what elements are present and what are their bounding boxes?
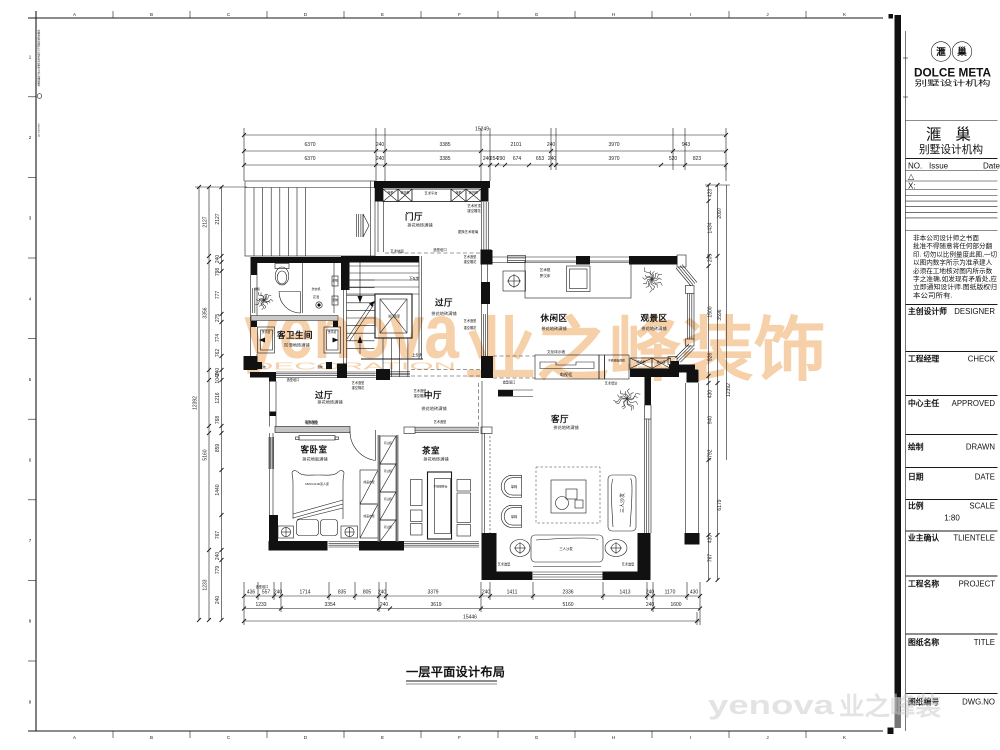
svg-text:镂空雕花: 镂空雕花 (467, 208, 481, 213)
svg-text:洗手盆: 洗手盆 (328, 330, 337, 334)
svg-text:滙 巢: 滙 巢 (926, 126, 976, 144)
svg-text:置物: 置物 (317, 365, 323, 369)
svg-text:拼花地砖满铺: 拼花地砖满铺 (317, 399, 342, 406)
svg-text:A: A (73, 735, 76, 740)
svg-text:H: H (612, 735, 615, 740)
svg-text:镂空隔花: 镂空隔花 (352, 385, 366, 390)
svg-text:3385: 3385 (439, 156, 450, 162)
svg-text:绿植: 绿植 (254, 286, 260, 291)
svg-text:Date: Date (983, 162, 1000, 171)
svg-text:必须在工地核对图内所示数: 必须在工地核对图内所示数 (913, 266, 993, 275)
svg-text:APPROVED: APPROVED (952, 399, 996, 408)
svg-text:PROJECT: PROJECT (959, 580, 996, 589)
svg-text:批准不得随意将任何部分翻: 批准不得随意将任何部分翻 (913, 241, 993, 250)
svg-text:1600: 1600 (670, 602, 681, 608)
svg-text:767: 767 (215, 531, 221, 540)
svg-text:主创设计师: 主创设计师 (908, 306, 947, 316)
svg-text:798: 798 (215, 268, 221, 277)
svg-text:674: 674 (513, 156, 522, 162)
svg-text:装饰柜: 装饰柜 (469, 190, 478, 195)
svg-text:H: H (612, 12, 615, 17)
svg-text:A2 1:80 DWG: A2 1:80 DWG (38, 123, 41, 137)
svg-text:774: 774 (215, 334, 221, 343)
svg-text:12392: 12392 (726, 383, 732, 397)
svg-text:别墅设计机构: 别墅设计机构 (915, 78, 992, 88)
svg-text:943: 943 (682, 142, 691, 148)
svg-text:拼花地砖满铺: 拼花地砖满铺 (553, 424, 578, 431)
svg-text:K: K (843, 735, 846, 740)
svg-text:鞋山柜: 鞋山柜 (384, 525, 392, 529)
svg-text:2336: 2336 (562, 590, 573, 596)
svg-text:过厅: 过厅 (315, 390, 333, 400)
svg-text:15446: 15446 (463, 615, 477, 621)
svg-text:拼花地板满铺: 拼花地板满铺 (302, 456, 327, 463)
svg-text:字之准确,如发现有矛盾处,应: 字之准确,如发现有矛盾处,应 (913, 274, 998, 283)
svg-text:1411: 1411 (507, 590, 518, 596)
svg-text:滙: 滙 (936, 46, 946, 58)
svg-text:yenova: yenova (708, 690, 835, 720)
svg-text:更换艺术玻璃: 更换艺术玻璃 (458, 229, 479, 234)
svg-text:拼花地砖满铺: 拼花地砖满铺 (423, 456, 448, 463)
svg-text:926: 926 (708, 353, 714, 362)
svg-text:装饰柜: 装饰柜 (636, 359, 645, 364)
svg-text:6179: 6179 (717, 499, 723, 510)
svg-text:不锈钢电视柜: 不锈钢电视柜 (608, 359, 625, 363)
svg-text:768: 768 (215, 416, 221, 425)
svg-text:造型垭口: 造型垭口 (503, 380, 516, 385)
svg-text:4792: 4792 (708, 449, 714, 460)
svg-text:E: E (381, 12, 384, 17)
svg-text:940: 940 (708, 416, 714, 425)
svg-text:430: 430 (690, 590, 699, 596)
svg-text:15249: 15249 (475, 127, 489, 133)
svg-text:业主确认: 业主确认 (908, 533, 939, 543)
svg-text:观景区: 观景区 (640, 313, 667, 323)
svg-text:240: 240 (376, 142, 385, 148)
svg-text:过厅: 过厅 (435, 298, 453, 308)
svg-text:不锈钢茶台: 不锈钢茶台 (434, 485, 448, 489)
svg-text:艺术造型: 艺术造型 (352, 380, 366, 385)
svg-text:三人沙发: 三人沙发 (619, 493, 626, 513)
svg-text:1440: 1440 (215, 484, 221, 495)
svg-text:业之峰装: 业之峰装 (839, 692, 941, 721)
svg-text:置物: 置物 (332, 279, 338, 283)
svg-text:6370: 6370 (304, 142, 315, 148)
svg-text:K: K (843, 12, 846, 17)
svg-text:B: B (150, 12, 153, 17)
svg-text:本公司所有.: 本公司所有. (913, 290, 953, 299)
svg-text:1233: 1233 (255, 602, 266, 608)
svg-text:275: 275 (215, 314, 221, 323)
svg-text:中厅: 中厅 (424, 390, 442, 400)
svg-text:240: 240 (380, 602, 389, 608)
svg-text:3970: 3970 (608, 142, 619, 148)
svg-text:艺术地面: 艺术地面 (390, 249, 404, 254)
svg-text:成品衣柜: 成品衣柜 (363, 514, 374, 518)
svg-text:印. 切勿以比例量度此图,一切: 印. 切勿以比例量度此图,一切 (913, 249, 997, 258)
svg-text:2127: 2127 (215, 213, 221, 224)
svg-text:罗汉床: 罗汉床 (540, 273, 551, 278)
svg-text:Issue: Issue (929, 162, 949, 171)
svg-text:3385: 3385 (439, 142, 450, 148)
svg-text:205: 205 (708, 254, 714, 263)
svg-text:鞋柜: 鞋柜 (455, 190, 461, 195)
svg-text:鞋山柜: 鞋山柜 (384, 497, 392, 501)
svg-text:拼花地砖满铺: 拼花地砖满铺 (421, 405, 446, 412)
svg-text:1800×2100双人床: 1800×2100双人床 (305, 481, 329, 486)
svg-text:240: 240 (215, 255, 221, 264)
svg-text:240: 240 (215, 552, 221, 561)
svg-text:日期: 日期 (908, 472, 924, 482)
svg-text:DECORATION: DECORATION (251, 361, 456, 373)
svg-text:835: 835 (338, 590, 347, 596)
svg-text:进门造型: 进门造型 (388, 313, 400, 318)
svg-text:6370: 6370 (304, 156, 315, 162)
svg-text:造型垭口: 造型垭口 (256, 584, 269, 589)
svg-text:艺术造型: 艺术造型 (434, 419, 448, 424)
svg-text:SCALE: SCALE (969, 502, 995, 511)
svg-text:1040: 1040 (215, 372, 221, 383)
svg-text:F: F (458, 735, 461, 740)
svg-text:装饰柜: 装饰柜 (400, 190, 409, 195)
svg-text:工程经理: 工程经理 (908, 354, 939, 364)
svg-text:拼花地砖满铺: 拼花地砖满铺 (407, 222, 432, 229)
svg-text:DRAWN: DRAWN (966, 443, 995, 452)
svg-text:805: 805 (363, 590, 372, 596)
svg-text:1233: 1233 (203, 579, 209, 590)
svg-text:造型垭口: 造型垭口 (433, 247, 447, 252)
svg-text:G: G (535, 12, 539, 17)
svg-text:5160: 5160 (562, 602, 573, 608)
svg-text:上5步: 上5步 (412, 352, 423, 359)
svg-text:290: 290 (497, 156, 506, 162)
svg-text:I: I (690, 12, 691, 17)
svg-text:E: E (381, 735, 384, 740)
svg-text:240: 240 (548, 156, 557, 162)
svg-text:比例: 比例 (908, 501, 924, 511)
svg-text:休闲区: 休闲区 (539, 313, 567, 323)
svg-text:一层平面设计布局: 一层平面设计布局 (406, 664, 505, 679)
svg-text:423: 423 (708, 189, 714, 198)
svg-text:3356: 3356 (203, 307, 209, 318)
svg-text:779: 779 (215, 566, 221, 575)
svg-text:门厅: 门厅 (405, 212, 423, 222)
svg-text:置物: 置物 (332, 298, 338, 302)
svg-text:别墅设计机构: 别墅设计机构 (919, 142, 983, 156)
svg-text:以图内数字所示为准承建人: 以图内数字所示为准承建人 (913, 258, 993, 267)
svg-text:艺术吊顶: 艺术吊顶 (467, 203, 481, 208)
svg-text:茶室: 茶室 (421, 446, 440, 456)
svg-text:12392: 12392 (193, 396, 199, 410)
svg-text:△: △ (908, 172, 915, 181)
svg-text:单椅: 单椅 (511, 484, 518, 489)
svg-text:777: 777 (215, 291, 221, 300)
svg-text:客卧室: 客卧室 (299, 445, 327, 455)
svg-text:823: 823 (693, 156, 702, 162)
svg-text:艺术墙龛: 艺术墙龛 (605, 381, 619, 386)
svg-text:拼花地砖满铺: 拼花地砖满铺 (541, 325, 566, 332)
svg-text:花洒: 花洒 (313, 294, 319, 299)
svg-text:DATE: DATE (975, 473, 995, 482)
svg-text:3354: 3354 (324, 602, 335, 608)
svg-text:三人沙发: 三人沙发 (559, 546, 573, 551)
svg-text:1434: 1434 (708, 222, 714, 233)
svg-text:艺术框: 艺术框 (540, 267, 551, 272)
svg-text:1:80: 1:80 (944, 514, 960, 523)
svg-text:430: 430 (708, 535, 714, 544)
svg-text:B: B (150, 735, 153, 740)
svg-text:1714: 1714 (299, 590, 310, 596)
svg-text:J: J (766, 735, 768, 740)
svg-text:3970: 3970 (608, 156, 619, 162)
svg-text:洗手盆: 洗手盆 (262, 330, 271, 334)
svg-text:859: 859 (215, 444, 221, 453)
svg-text:单椅: 单椅 (511, 514, 518, 519)
svg-text:洗衣机: 洗衣机 (311, 286, 320, 291)
svg-text:762: 762 (215, 349, 221, 358)
svg-text:DWG.NO: DWG.NO (962, 698, 995, 707)
svg-text:1413: 1413 (619, 590, 630, 596)
svg-text:240: 240 (482, 590, 491, 596)
svg-text:艺术平台: 艺术平台 (424, 191, 438, 196)
svg-text:成品衣柜: 成品衣柜 (363, 480, 374, 484)
svg-text:电视柜: 电视柜 (560, 371, 573, 378)
svg-text:造型垭口: 造型垭口 (287, 377, 300, 382)
svg-text:CHECK: CHECK (968, 355, 996, 364)
svg-text:X:: X: (908, 182, 916, 191)
svg-text:1170: 1170 (665, 590, 676, 596)
svg-text:J: J (766, 12, 768, 17)
svg-text:767: 767 (708, 554, 714, 563)
svg-text:绘制: 绘制 (908, 442, 924, 452)
svg-text:鞋柜: 鞋柜 (387, 190, 393, 195)
svg-text:立即通知设计师.图纸版权归: 立即通知设计师.图纸版权归 (913, 282, 997, 291)
svg-text:3596: 3596 (717, 309, 723, 320)
svg-text:3619: 3619 (430, 602, 441, 608)
svg-text:G: G (535, 735, 539, 740)
svg-text:艺术造型: 艺术造型 (414, 388, 428, 393)
svg-text:镂空雕花: 镂空雕花 (464, 259, 478, 264)
svg-text:装饰造型: 装饰造型 (306, 420, 320, 425)
svg-text:图纸名称: 图纸名称 (908, 637, 939, 647)
svg-text:430: 430 (708, 390, 714, 399)
svg-text:中心主任: 中心主任 (908, 398, 939, 408)
svg-text:巢: 巢 (956, 46, 967, 58)
svg-text:A: A (73, 12, 76, 17)
svg-text:镂空雕花: 镂空雕花 (464, 325, 478, 330)
svg-text:艺术造型: 艺术造型 (464, 254, 478, 259)
svg-text:3379: 3379 (427, 590, 438, 596)
svg-text:客卫生间: 客卫生间 (276, 330, 313, 340)
svg-text:置物: 置物 (260, 365, 266, 369)
svg-text:鞋山柜: 鞋山柜 (384, 441, 392, 445)
svg-text:拼花地砖满铺: 拼花地砖满铺 (641, 325, 666, 332)
svg-text:F: F (458, 12, 461, 17)
svg-text:艺术造型: 艺术造型 (464, 318, 478, 323)
svg-text:鞋山柜: 鞋山柜 (384, 469, 392, 473)
svg-text:2097: 2097 (717, 207, 723, 218)
svg-text:文化砖示墙: 文化砖示墙 (547, 349, 565, 354)
svg-text:1216: 1216 (215, 392, 221, 403)
svg-text:TITLE: TITLE (974, 638, 995, 647)
svg-text:557: 557 (262, 590, 271, 596)
svg-text:436: 436 (247, 590, 256, 596)
svg-text:拼花地砖满铺: 拼花地砖满铺 (431, 310, 456, 317)
svg-text:5160: 5160 (203, 449, 209, 460)
svg-text:I: I (690, 735, 691, 740)
svg-text:非本公司设计师之书面: 非本公司设计师之书面 (913, 233, 980, 242)
svg-text:240: 240 (376, 156, 385, 162)
svg-text:240: 240 (215, 596, 221, 605)
svg-text:客厅: 客厅 (550, 414, 569, 424)
svg-text:坐便器: 坐便器 (276, 258, 285, 263)
svg-text:工程名称: 工程名称 (908, 579, 939, 589)
svg-text:艺术造型: 艺术造型 (498, 562, 512, 567)
svg-text:2127: 2127 (203, 216, 209, 227)
svg-text:653: 653 (536, 156, 545, 162)
svg-text:NO.: NO. (908, 162, 922, 171)
svg-text:1500: 1500 (708, 306, 714, 317)
svg-text:TLIENTELE: TLIENTELE (953, 534, 995, 543)
svg-text:防滑地砖满铺: 防滑地砖满铺 (284, 342, 309, 349)
svg-text:DESIGNER: DESIGNER (954, 307, 995, 316)
svg-text:艺术造型: 艺术造型 (622, 562, 636, 567)
svg-text:猫小宝: 猫小宝 (656, 359, 665, 364)
svg-text:2101: 2101 (510, 142, 521, 148)
svg-text:镂空雕花: 镂空雕花 (414, 393, 428, 398)
